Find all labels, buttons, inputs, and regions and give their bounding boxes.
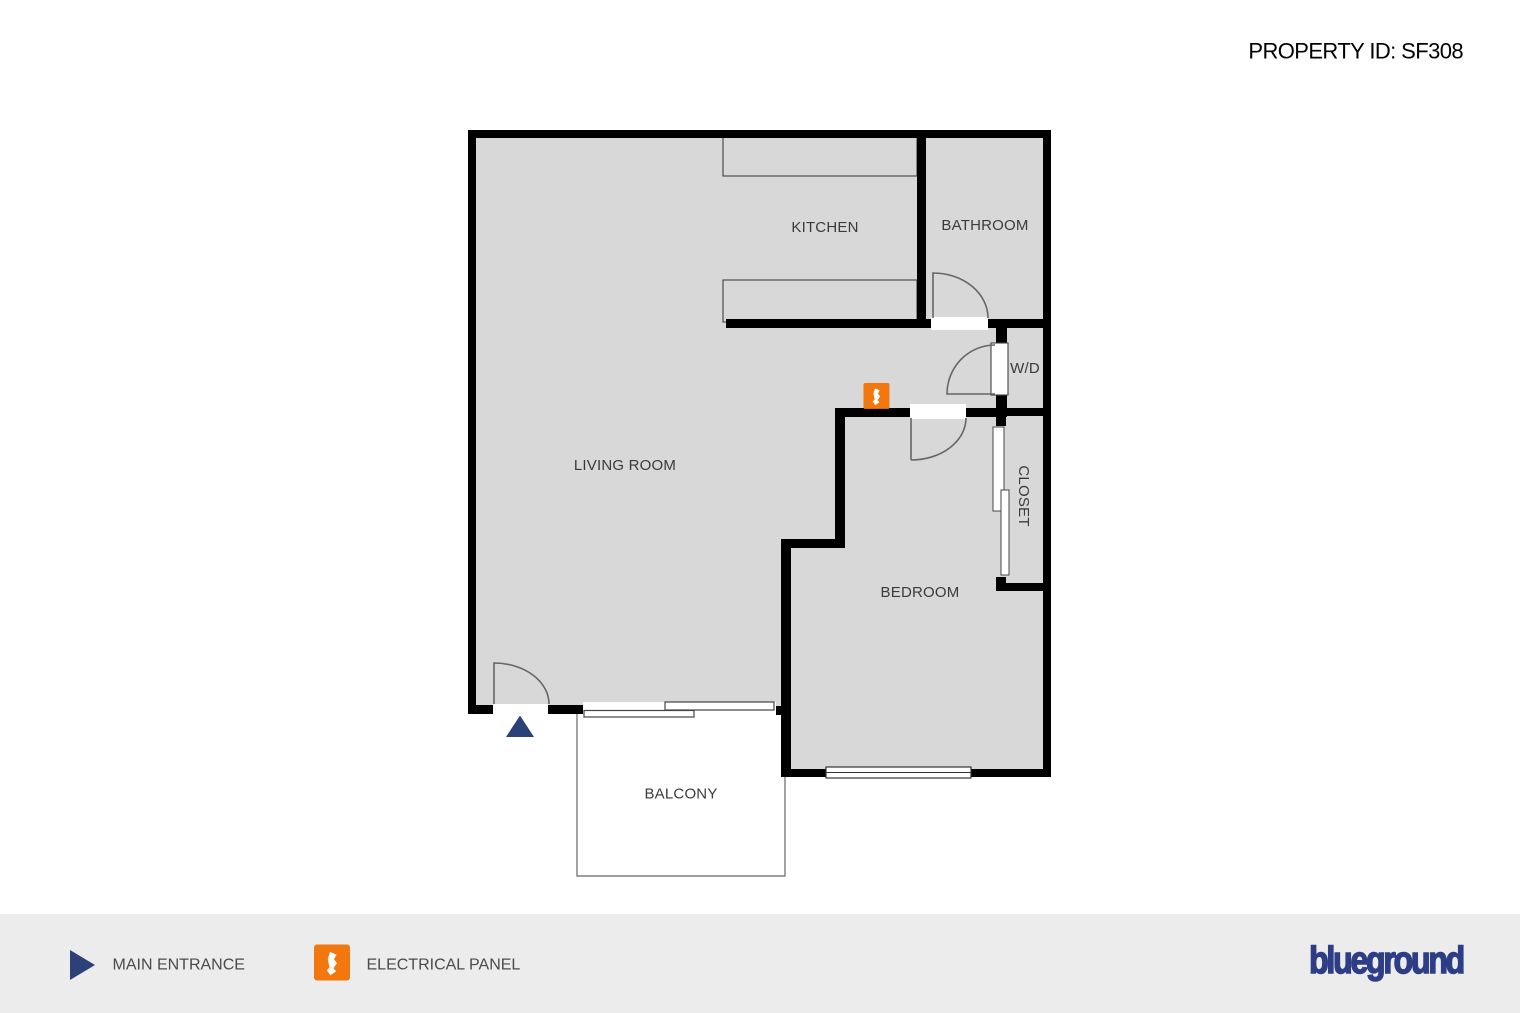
svg-text:W/D: W/D — [1010, 360, 1040, 377]
svg-text:LIVING ROOM: LIVING ROOM — [574, 457, 676, 474]
svg-text:BEDROOM: BEDROOM — [881, 584, 960, 601]
svg-text:PROPERTY ID: SF308: PROPERTY ID: SF308 — [1248, 39, 1463, 64]
svg-text:ELECTRICAL PANEL: ELECTRICAL PANEL — [367, 957, 521, 974]
svg-text:BATHROOM: BATHROOM — [941, 217, 1028, 234]
svg-text:MAIN ENTRANCE: MAIN ENTRANCE — [113, 957, 245, 974]
svg-text:blueground: blueground — [1309, 940, 1464, 982]
svg-text:KITCHEN: KITCHEN — [791, 219, 858, 236]
svg-text:BALCONY: BALCONY — [644, 786, 717, 803]
svg-text:CLOSET: CLOSET — [1015, 465, 1032, 526]
